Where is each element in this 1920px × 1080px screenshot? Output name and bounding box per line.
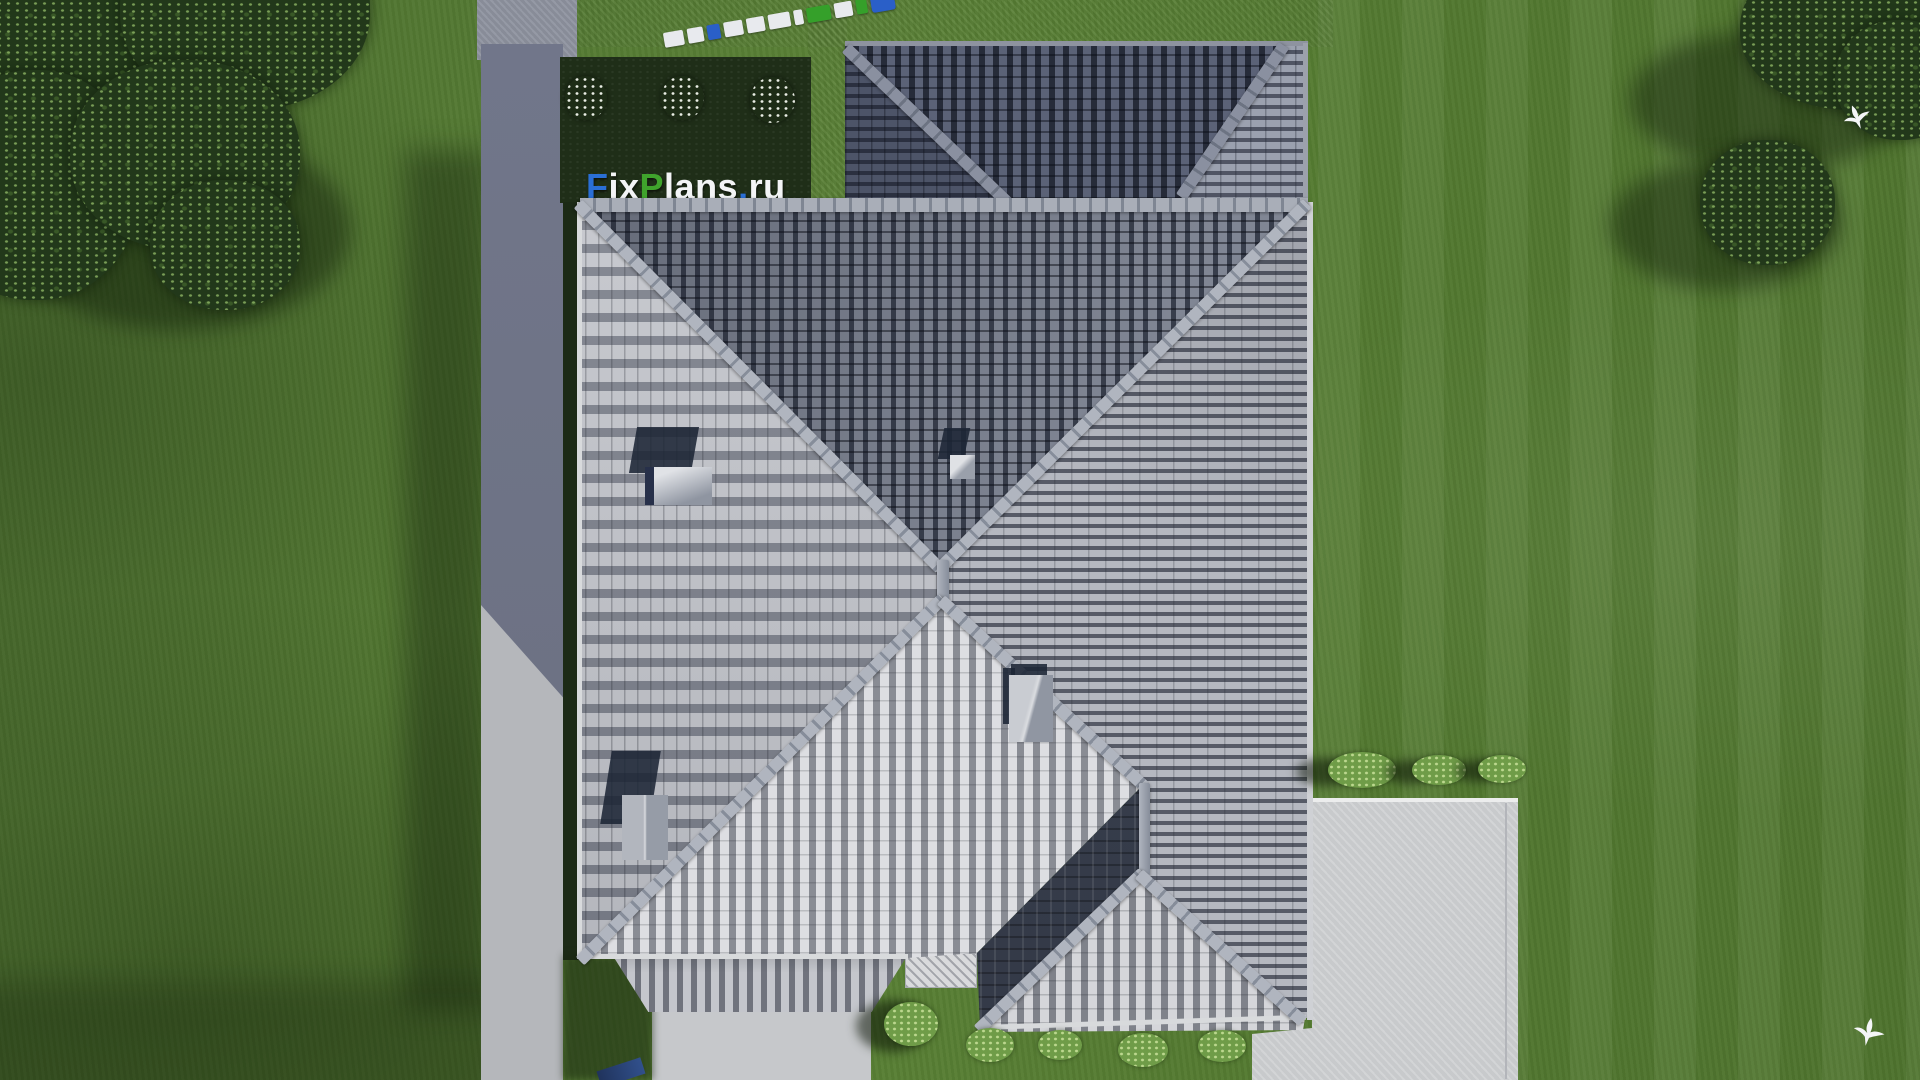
chimney-west: [645, 467, 712, 505]
white-bush: [565, 76, 607, 120]
aerial-site-render: FixPlans.ru: [0, 0, 1920, 1080]
chimney-southwest: [622, 795, 668, 860]
eave-fascia-left: [577, 202, 582, 959]
truck-trailer-segment: [767, 11, 791, 30]
eave-fascia-right: [1307, 202, 1313, 1020]
main-ridge-top: [580, 198, 1308, 212]
chimney-south: [1009, 675, 1053, 742]
truck-trailer-segment: [793, 9, 804, 25]
tree: [150, 180, 300, 310]
white-bush: [661, 76, 704, 120]
stone-pad: [905, 953, 977, 988]
porch-pavement: [652, 1008, 871, 1080]
truck-trailer-segment: [806, 4, 832, 23]
bush: [1478, 755, 1526, 783]
porch-roof: [613, 956, 907, 1012]
roof-vent: [950, 455, 975, 479]
upper-roof-right-edge: [1303, 43, 1308, 203]
eave-fascia-bottom: [582, 954, 908, 959]
truck-trailer-segment: [706, 23, 721, 40]
grass-shadow-bottom-left: [0, 980, 520, 1080]
extension-center-ridge: [1139, 783, 1150, 875]
truck-trailer-segment: [855, 0, 868, 14]
tree: [1700, 140, 1835, 265]
truck-trailer-segment: [745, 15, 765, 33]
truck-trailer-segment: [833, 0, 853, 18]
bush: [966, 1028, 1014, 1062]
bush: [884, 1002, 938, 1046]
truck-trailer-segment: [663, 29, 685, 47]
driveway-shadow: [481, 44, 563, 704]
patio-border: [1310, 798, 1518, 802]
bush: [1038, 1030, 1082, 1060]
bush: [1118, 1033, 1168, 1067]
road-top: [477, 0, 1333, 47]
truck-trailer-segment: [723, 19, 744, 37]
patio-inner-line: [1505, 803, 1507, 1079]
truck-trailer-segment: [686, 26, 704, 44]
road-notch: [808, 0, 847, 203]
white-bush: [750, 77, 795, 123]
upper-roof-eave: [845, 41, 1308, 46]
grass-shadow-left: [405, 150, 490, 1010]
bush: [1198, 1030, 1246, 1062]
